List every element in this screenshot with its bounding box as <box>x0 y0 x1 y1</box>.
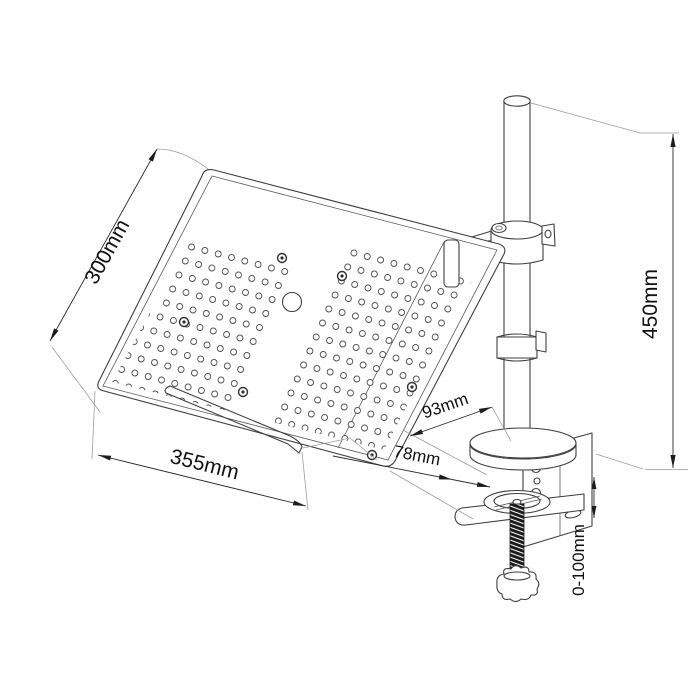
vent-hole <box>218 377 224 383</box>
vent-hole <box>269 297 275 303</box>
pole-top-cap <box>504 96 530 106</box>
vent-hole <box>308 380 314 386</box>
vent-hole <box>425 285 431 291</box>
vent-hole <box>445 306 451 312</box>
vent-hole <box>160 440 166 446</box>
vent-hole <box>158 346 164 352</box>
vent-hole <box>162 237 168 243</box>
vent-hole <box>405 296 411 302</box>
vent-hole <box>327 338 333 344</box>
label-clamp-opening-range: 0-100mm <box>569 524 588 596</box>
laptop-arm-technical-drawing: 300mm 355mm 450mm 93mm 78mm 0-100mm <box>0 0 700 700</box>
vent-hole <box>346 327 352 333</box>
vent-hole <box>361 394 367 400</box>
vent-hole <box>176 272 182 278</box>
vent-hole <box>420 362 426 368</box>
vent-hole <box>183 290 189 296</box>
vent-hole <box>282 269 288 275</box>
vent-hole <box>314 366 320 372</box>
vent-hole <box>199 419 205 425</box>
vent-hole <box>406 359 412 365</box>
vent-hole <box>133 433 139 439</box>
vent-hole <box>133 402 139 408</box>
vent-hole <box>262 279 268 285</box>
vent-hole <box>126 416 132 422</box>
vent-hole <box>301 394 307 400</box>
vent-hole <box>193 433 199 439</box>
dimension-355mm: 355mm <box>98 445 306 506</box>
vent-hole <box>367 380 373 386</box>
vent-hole <box>238 367 244 373</box>
vent-hole <box>339 310 345 316</box>
vent-hole <box>374 397 380 403</box>
vent-hole <box>341 404 347 410</box>
vent-hole <box>385 306 391 312</box>
vent-hole <box>140 419 146 425</box>
vent-hole <box>198 388 204 394</box>
vent-hole <box>352 282 358 288</box>
vent-hole <box>184 353 190 359</box>
vent-hole <box>334 355 340 361</box>
vent-hole <box>439 320 445 326</box>
vent-hole <box>145 342 151 348</box>
vent-hole <box>217 314 223 320</box>
vent-hole <box>230 318 236 324</box>
technical-drawing-page: 300mm 355mm 450mm 93mm 78mm 0-100mm <box>0 0 700 700</box>
vent-hole <box>359 299 365 305</box>
vent-hole <box>243 290 249 296</box>
vent-hole <box>231 381 237 387</box>
vent-hole <box>163 300 169 306</box>
vent-hole <box>365 285 371 291</box>
vent-hole <box>301 362 307 368</box>
vent-hole <box>268 265 274 271</box>
vent-hole <box>432 303 438 309</box>
laptop-tray <box>80 170 505 470</box>
vent-hole <box>180 430 186 436</box>
vent-hole <box>159 377 165 383</box>
vent-hole <box>156 251 162 257</box>
vent-hole <box>249 276 255 282</box>
vent-hole <box>378 289 384 295</box>
vent-hole <box>153 423 159 429</box>
vent-hole <box>451 292 457 298</box>
vent-hole <box>308 411 314 417</box>
vent-hole <box>320 320 326 326</box>
vent-hole <box>185 384 191 390</box>
vent-hole <box>255 262 261 268</box>
vent-hole <box>236 272 242 278</box>
vent-hole <box>93 423 99 429</box>
clamp-top-plate <box>470 428 576 458</box>
dimension-450mm: 450mm <box>639 134 676 468</box>
vent-hole <box>335 418 341 424</box>
vent-hole <box>80 419 86 425</box>
vent-hole <box>177 304 183 310</box>
vent-hole <box>215 251 221 257</box>
vent-hole <box>212 391 218 397</box>
vent-hole <box>275 283 281 289</box>
vent-hole <box>203 279 209 285</box>
vent-hole <box>100 409 106 415</box>
vent-hole <box>315 397 321 403</box>
vent-hole <box>93 391 99 397</box>
vent-hole <box>182 258 188 264</box>
vent-hole <box>189 276 195 282</box>
vent-hole <box>120 430 126 436</box>
vent-hole <box>438 289 444 295</box>
vent-hole <box>282 404 288 410</box>
vent-hole <box>385 275 391 281</box>
label-tray-depth: 300mm <box>80 216 134 288</box>
vent-hole <box>151 328 157 334</box>
vent-hole <box>173 412 179 418</box>
vent-hole <box>375 429 381 435</box>
label-pole-height: 450mm <box>639 269 662 339</box>
vent-hole <box>196 262 202 268</box>
vent-hole <box>170 286 176 292</box>
vent-hole <box>288 390 294 396</box>
vent-hole <box>406 327 412 333</box>
vent-hole <box>224 332 230 338</box>
vent-hole <box>391 261 397 267</box>
vent-hole <box>426 348 432 354</box>
label-tray-width: 355mm <box>168 445 242 484</box>
vent-hole <box>340 341 346 347</box>
vent-hole <box>191 339 197 345</box>
vent-hole <box>354 376 360 382</box>
vent-hole <box>86 405 92 411</box>
vent-hole <box>147 437 153 443</box>
label-clamp-throat-depth: 78mm <box>392 442 442 470</box>
vent-hole <box>372 303 378 309</box>
vent-hole <box>394 387 400 393</box>
vent-hole <box>355 408 361 414</box>
vent-hole <box>351 250 357 256</box>
vent-hole <box>229 286 235 292</box>
vent-hole <box>231 349 237 355</box>
threaded-rod <box>510 504 524 576</box>
vent-hole <box>364 254 370 260</box>
vent-hole <box>106 395 112 401</box>
vent-hole <box>256 293 262 299</box>
vent-hole <box>334 387 340 393</box>
vent-hole <box>392 324 398 330</box>
vent-hole <box>164 332 170 338</box>
clamp-knob <box>497 566 539 602</box>
tray-edge-bracket <box>444 240 459 287</box>
vent-hole <box>172 381 178 387</box>
vent-hole <box>250 307 256 313</box>
vent-hole <box>404 264 410 270</box>
vent-hole <box>138 356 144 362</box>
vent-hole <box>210 328 216 334</box>
vent-hole <box>386 338 392 344</box>
vent-hole <box>432 334 438 340</box>
vent-hole <box>380 383 386 389</box>
vent-hole <box>211 360 217 366</box>
vent-hole <box>360 362 366 368</box>
vent-hole <box>210 297 216 303</box>
vent-hole <box>146 405 152 411</box>
vent-hole <box>145 374 151 380</box>
vent-hole <box>177 335 183 341</box>
vent-hole <box>113 412 119 418</box>
vent-hole <box>205 374 211 380</box>
vent-hole <box>237 335 243 341</box>
vent-hole <box>413 376 419 382</box>
vent-hole <box>178 367 184 373</box>
vent-hole <box>345 264 351 270</box>
vent-hole <box>347 359 353 365</box>
vent-hole <box>209 265 215 271</box>
vent-hole <box>418 268 424 274</box>
vent-hole <box>320 352 326 358</box>
vent-hole <box>152 360 158 366</box>
vent-hole <box>381 415 387 421</box>
vent-hole <box>132 370 138 376</box>
vent-hole <box>157 314 163 320</box>
vent-hole <box>229 255 235 261</box>
vent-hole <box>413 345 419 351</box>
vent-hole <box>431 271 437 277</box>
vent-hole <box>419 331 425 337</box>
vent-hole <box>222 269 228 275</box>
vent-hole <box>332 292 338 298</box>
vent-hole <box>107 426 113 432</box>
vent-hole <box>191 370 197 376</box>
vent-hole <box>366 348 372 354</box>
vent-hole <box>250 339 256 345</box>
vent-hole <box>307 348 313 354</box>
elbow-bolt <box>492 224 506 233</box>
vent-hole <box>189 244 195 250</box>
vent-hole <box>257 325 263 331</box>
vent-hole <box>197 325 203 331</box>
vent-hole <box>313 334 319 340</box>
vent-hole <box>119 398 125 404</box>
pole-collar-ring <box>497 331 546 361</box>
vent-hole <box>333 324 339 330</box>
vent-hole <box>400 373 406 379</box>
vent-hole <box>378 257 384 263</box>
vent-hole <box>186 416 192 422</box>
vent-hole <box>328 401 334 407</box>
vent-hole <box>206 437 212 443</box>
vent-hole <box>224 363 230 369</box>
vent-hole <box>418 299 424 305</box>
vent-hole <box>387 401 393 407</box>
vent-hole <box>399 341 405 347</box>
vent-hole <box>387 369 393 375</box>
vent-hole <box>159 409 165 415</box>
vent-hole <box>212 423 218 429</box>
vent-hole <box>362 425 368 431</box>
vent-hole <box>170 318 176 324</box>
vent-hole <box>196 293 202 299</box>
vent-hole <box>352 313 358 319</box>
vent-hole <box>425 317 431 323</box>
vent-hole <box>371 271 377 277</box>
vent-hole <box>345 296 351 302</box>
vent-hole <box>327 369 333 375</box>
vent-hole <box>322 415 328 421</box>
vent-hole <box>263 311 269 317</box>
vent-hole <box>242 258 248 264</box>
vent-hole <box>380 352 386 358</box>
vent-hole <box>368 411 374 417</box>
vent-hole <box>217 346 223 352</box>
vent-hole <box>216 283 222 289</box>
vent-hole <box>294 376 300 382</box>
vent-hole <box>204 342 210 348</box>
vent-hole <box>202 248 208 254</box>
vent-hole <box>203 311 209 317</box>
mounting-pole <box>504 96 530 434</box>
vent-hole <box>341 373 347 379</box>
vent-hole <box>373 366 379 372</box>
vent-hole <box>190 307 196 313</box>
vent-hole <box>348 390 354 396</box>
vent-hole <box>353 345 359 351</box>
vent-hole <box>373 334 379 340</box>
vent-hole <box>223 300 229 306</box>
vent-hole <box>366 317 372 323</box>
vent-hole <box>198 356 204 362</box>
vent-hole <box>236 304 242 310</box>
vent-hole <box>379 320 385 326</box>
vent-hole <box>412 313 418 319</box>
vent-hole <box>171 349 177 355</box>
vent-hole <box>392 292 398 298</box>
tray-center-hole <box>283 293 302 312</box>
vent-hole <box>243 321 249 327</box>
vent-hole <box>326 306 332 312</box>
vent-hole <box>244 353 250 359</box>
vent-hole <box>225 395 231 401</box>
vent-hole <box>393 355 399 361</box>
vent-hole <box>411 282 417 288</box>
vent-hole <box>398 278 404 284</box>
vent-hole <box>358 268 364 274</box>
vent-hole <box>399 310 405 316</box>
vent-hole <box>359 331 365 337</box>
vent-hole <box>348 422 354 428</box>
vent-hole <box>321 383 327 389</box>
vent-hole <box>295 408 301 414</box>
vent-hole <box>166 426 172 432</box>
vent-hole <box>165 363 171 369</box>
